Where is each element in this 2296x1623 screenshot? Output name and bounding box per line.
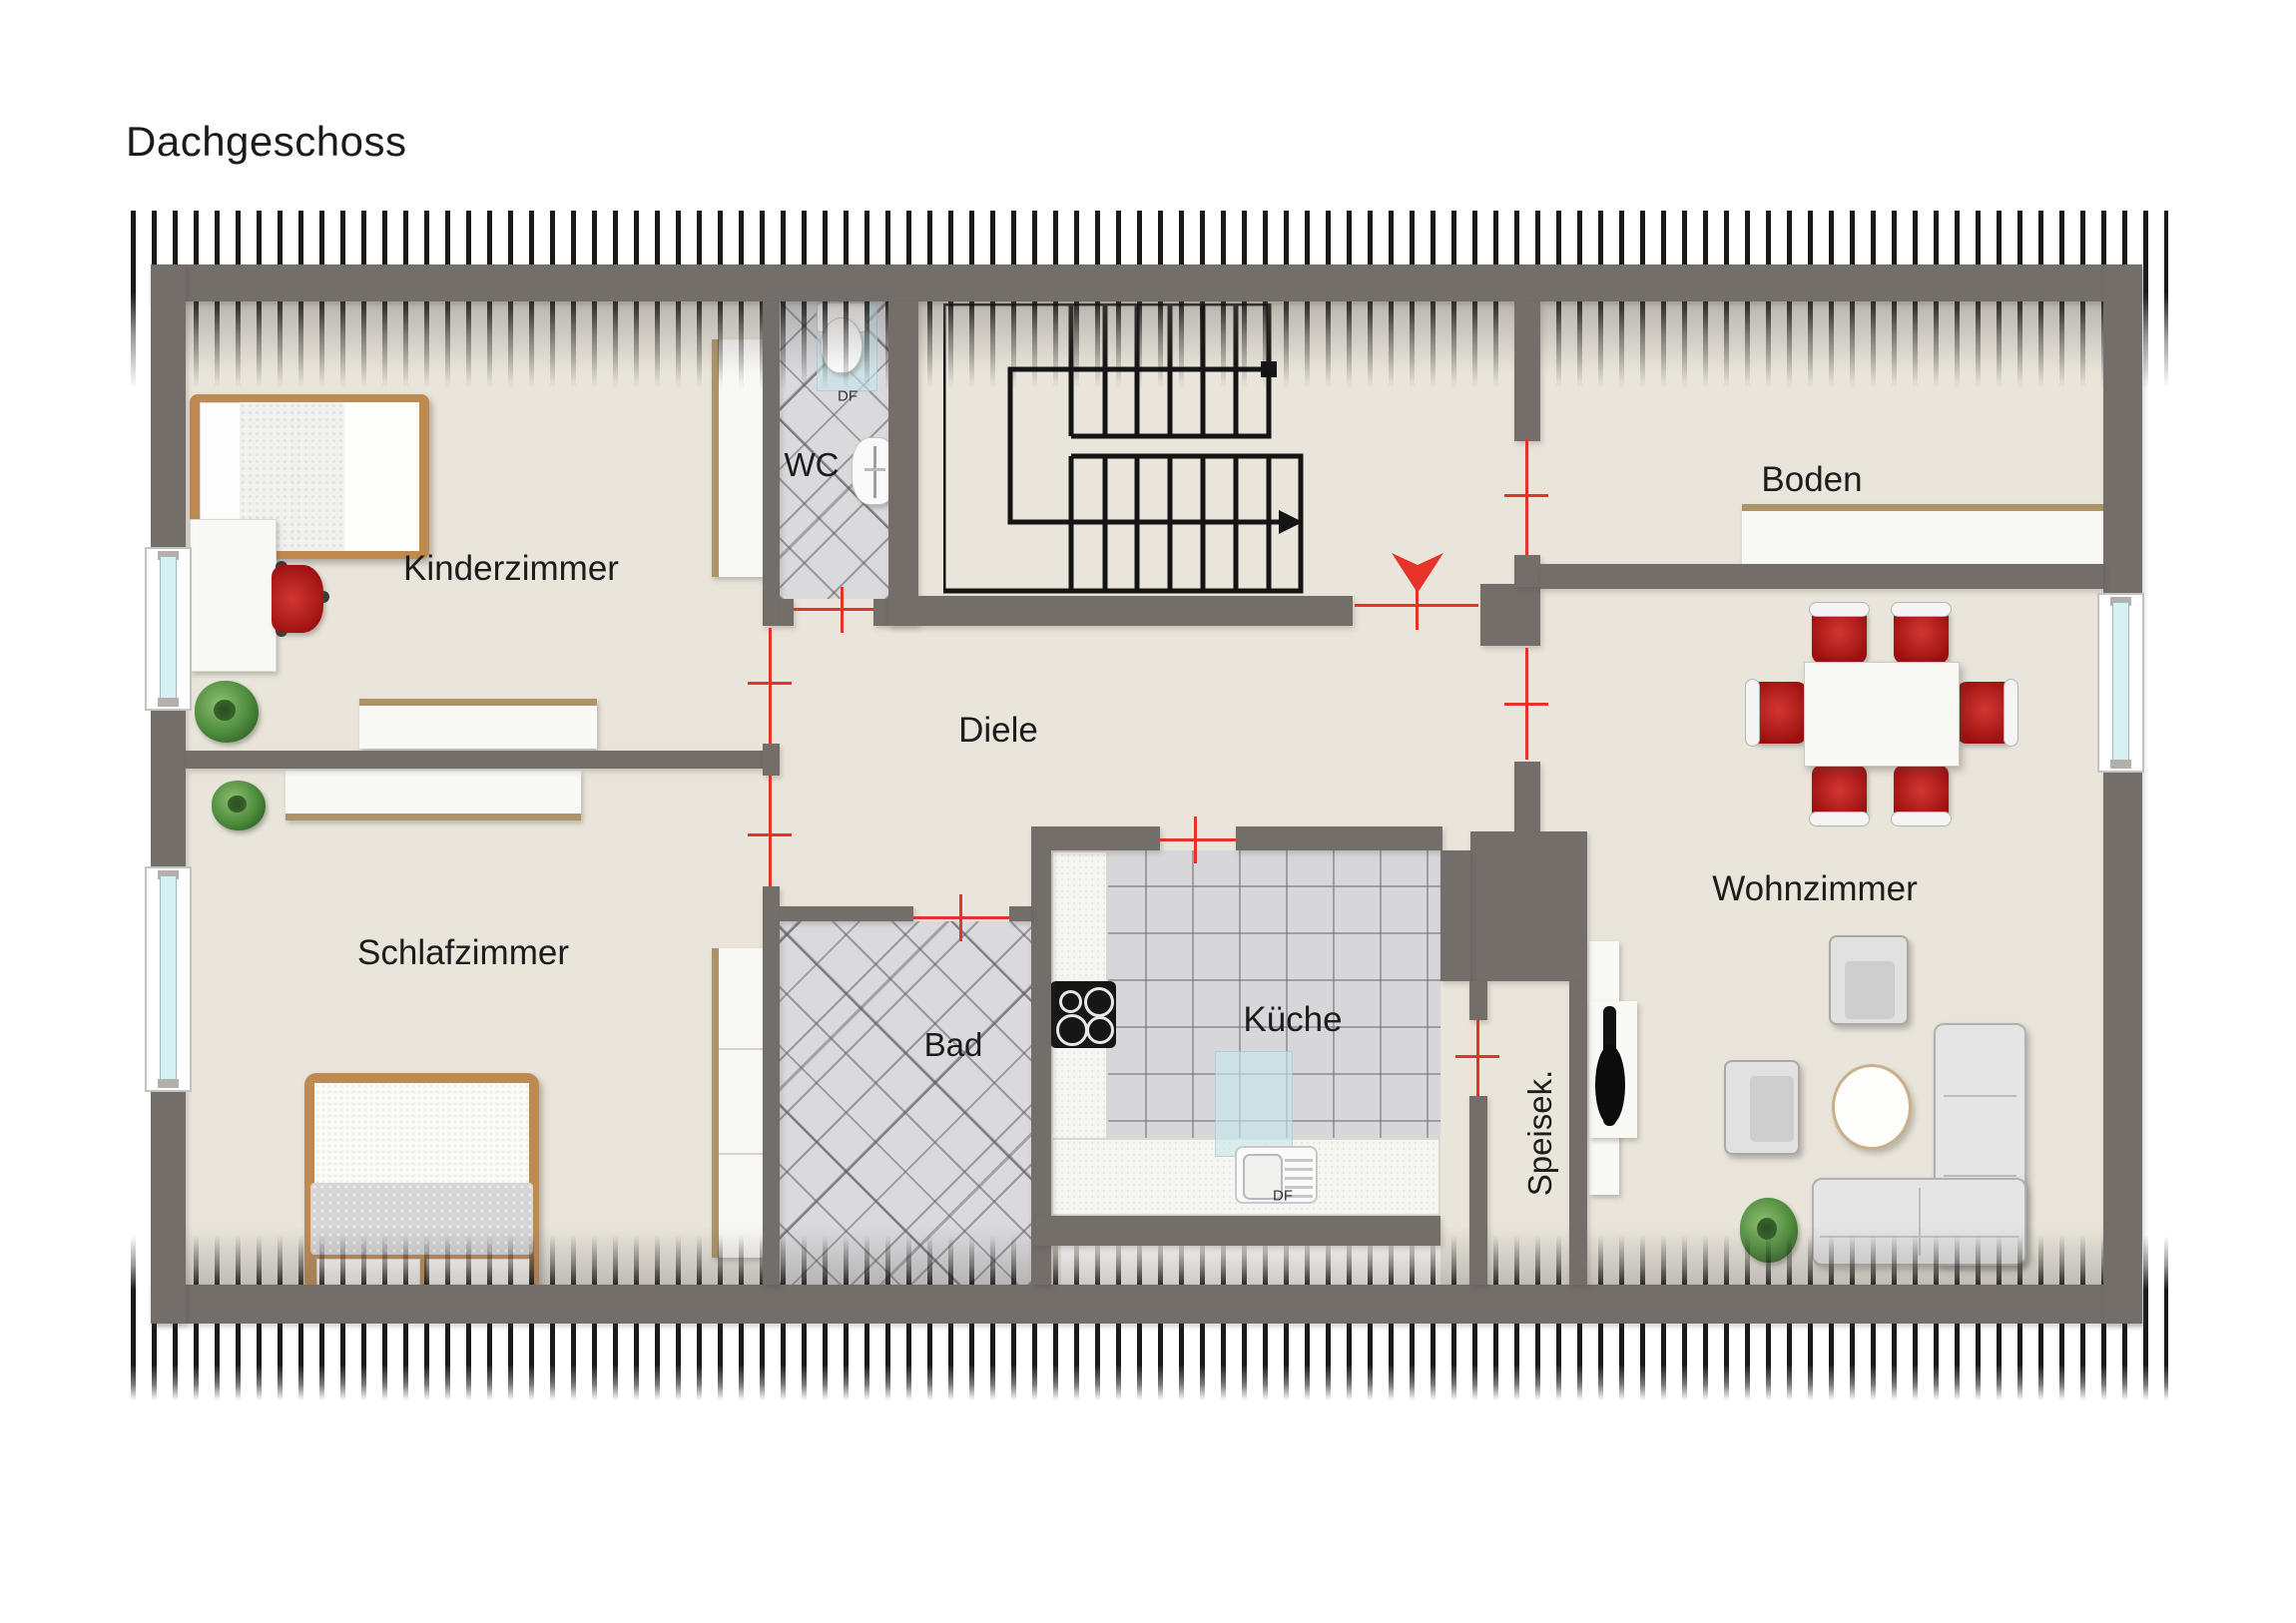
chair-back — [1745, 679, 1760, 747]
dining-chair — [1957, 682, 2013, 744]
burner — [1059, 990, 1082, 1013]
shelf-kinderzimmer-south — [359, 699, 597, 749]
sink-faucet — [873, 446, 876, 498]
door-tick — [748, 833, 792, 836]
wall — [1031, 826, 1160, 850]
dining-chair — [1894, 765, 1949, 821]
sideboard-boden — [1742, 504, 2103, 564]
room-label-speisekammer: Speisek. — [1521, 1070, 1559, 1197]
wall — [888, 596, 1353, 626]
wall — [186, 751, 763, 769]
window — [145, 547, 192, 711]
door-marker-wc — [794, 608, 873, 611]
wall — [780, 599, 794, 626]
page-title: Dachgeschoss — [126, 118, 406, 166]
wall — [1440, 850, 1470, 981]
window-glass — [160, 556, 177, 702]
sofa-seam — [1944, 1095, 2016, 1097]
room-label-boden: Boden — [1761, 460, 1862, 500]
bed-mattress — [314, 1083, 529, 1183]
wardrobe — [712, 948, 763, 1258]
door-tick — [1194, 816, 1197, 863]
dining-table — [1804, 662, 1960, 767]
chair-back — [1809, 602, 1870, 617]
sink-faucet-bar — [864, 468, 885, 471]
floor-plan: Dachgeschoss — [0, 0, 2296, 1623]
armchair — [1724, 1060, 1800, 1155]
cooktop — [1050, 981, 1116, 1048]
coffee-table — [1832, 1064, 1912, 1150]
wall — [1540, 564, 2103, 589]
wall — [1514, 555, 1540, 587]
burner — [1086, 1016, 1114, 1044]
wall — [1031, 1216, 1440, 1246]
wall — [2103, 265, 2142, 1324]
window — [2097, 593, 2144, 773]
dining-chair — [1812, 607, 1867, 664]
wall — [763, 744, 780, 776]
wall — [763, 301, 780, 626]
burner — [1056, 1014, 1088, 1046]
wall — [1469, 981, 1487, 1020]
room-label-diele: Diele — [958, 711, 1038, 751]
window — [145, 866, 192, 1092]
tv-screen — [1595, 1045, 1625, 1125]
armchair-seat — [1845, 961, 1895, 1019]
wall — [151, 1285, 2142, 1324]
door-marker-schlafzimmer — [769, 776, 772, 886]
wall — [1514, 762, 1540, 831]
dining-chair — [1812, 765, 1867, 821]
room-label-wohnzimmer: Wohnzimmer — [1712, 869, 1918, 909]
skylight-label-wc: DF — [838, 388, 858, 405]
burner — [1084, 987, 1114, 1017]
wall — [1009, 906, 1031, 921]
wall — [873, 599, 888, 626]
door-marker-kueche — [1160, 838, 1236, 841]
wall — [151, 265, 186, 1324]
room-label-wc: WC — [785, 446, 840, 484]
armchair-seat — [1750, 1076, 1794, 1142]
wardrobe-divider — [719, 1048, 763, 1050]
wall — [1480, 584, 1540, 646]
window-glass — [160, 875, 177, 1083]
armchair — [1829, 935, 1909, 1025]
chair-back — [1891, 602, 1952, 617]
door-tick — [748, 682, 792, 685]
room-label-schlafzimmer: Schlafzimmer — [357, 933, 569, 973]
wardrobe-divider — [719, 1153, 763, 1155]
desk-chair — [272, 565, 331, 633]
chair-back — [1891, 811, 1952, 826]
wall — [1569, 981, 1587, 1285]
plant — [212, 781, 266, 830]
door-tick — [1504, 494, 1548, 497]
door-marker-boden — [1525, 439, 1528, 555]
desk — [190, 519, 277, 672]
chair-seat — [272, 565, 323, 633]
wall — [1470, 831, 1587, 981]
door-marker-speisekammer — [1476, 1020, 1479, 1096]
wall — [1236, 826, 1442, 850]
door-tick — [841, 587, 844, 633]
dining-chair — [1750, 682, 1807, 744]
plant — [195, 681, 259, 743]
skylight-label-kueche: DF — [1273, 1188, 1293, 1205]
sofa-seam — [1944, 1175, 2016, 1177]
bed-sheet — [344, 402, 419, 551]
wall — [780, 906, 913, 921]
room-label-kinderzimmer: Kinderzimmer — [403, 549, 619, 589]
room-label-kueche: Küche — [1243, 1000, 1342, 1040]
door-tick — [959, 894, 962, 941]
dining-chair — [1894, 607, 1949, 664]
wall — [763, 886, 780, 1285]
wall — [888, 301, 918, 626]
skylight-kueche — [1215, 1051, 1293, 1157]
door-tick — [1455, 1055, 1499, 1058]
chair-back — [1809, 811, 1870, 826]
window-glass — [2112, 602, 2129, 764]
wall — [1469, 1096, 1487, 1285]
wall — [1514, 301, 1540, 441]
wall — [151, 265, 2142, 301]
door-marker-kinderzimmer — [769, 628, 772, 744]
chair-back — [2004, 679, 2018, 747]
room-label-bad: Bad — [924, 1026, 983, 1064]
door-tick — [1504, 703, 1548, 706]
shelf-schlafzimmer-north — [286, 771, 581, 820]
